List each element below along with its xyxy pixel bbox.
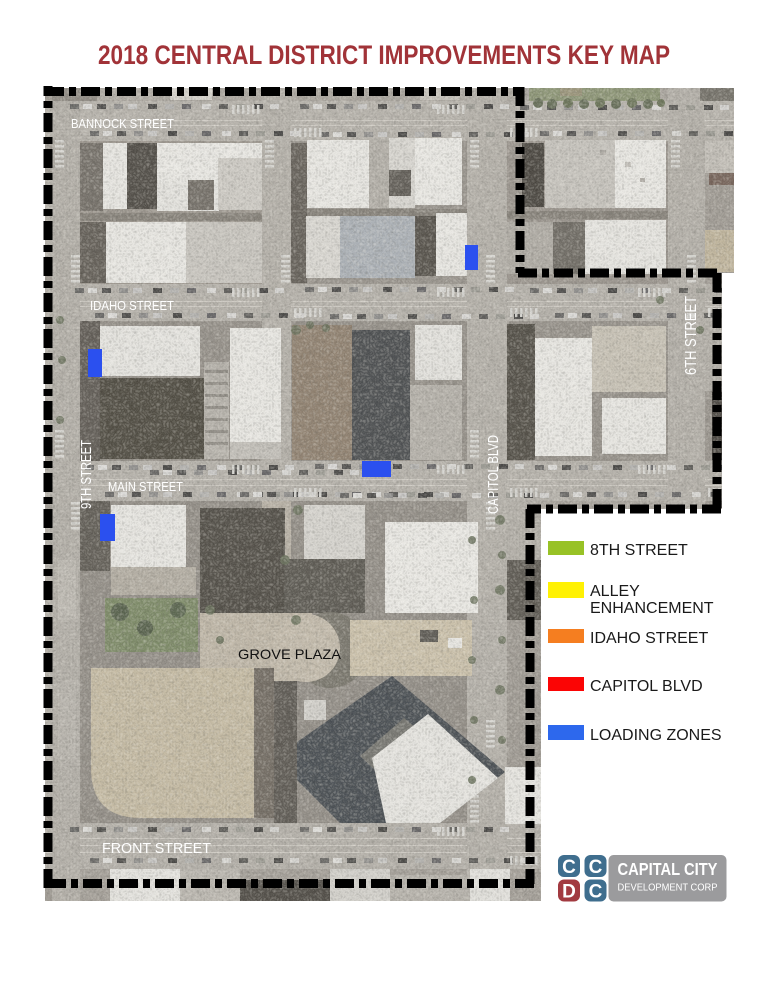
- svg-text:IDAHO STREET: IDAHO STREET: [90, 298, 174, 313]
- svg-text:C: C: [562, 857, 576, 878]
- svg-text:CAPITOL BLVD: CAPITOL BLVD: [485, 435, 502, 514]
- svg-text:BANNOCK STREET: BANNOCK STREET: [71, 116, 174, 131]
- svg-text:FRONT STREET: FRONT STREET: [102, 840, 211, 857]
- svg-text:CAPITOL BLVD: CAPITOL BLVD: [590, 678, 703, 695]
- svg-text:MAIN STREET: MAIN STREET: [108, 479, 183, 494]
- svg-text:2018 CENTRAL DISTRICT IMPROVEM: 2018 CENTRAL DISTRICT IMPROVEMENTS KEY M…: [98, 40, 670, 70]
- svg-text:CAPITAL CITY: CAPITAL CITY: [618, 859, 718, 879]
- svg-text:C: C: [589, 882, 603, 903]
- svg-text:LOADING ZONES: LOADING ZONES: [590, 727, 722, 744]
- svg-text:D: D: [562, 882, 576, 903]
- svg-text:ALLEY: ALLEY: [590, 583, 640, 600]
- svg-text:9TH STREET: 9TH STREET: [79, 440, 95, 509]
- svg-text:ENHANCEMENT: ENHANCEMENT: [590, 600, 714, 617]
- svg-text:DEVELOPMENT CORP: DEVELOPMENT CORP: [618, 883, 718, 894]
- svg-text:IDAHO STREET: IDAHO STREET: [590, 630, 708, 647]
- svg-text:6TH STREET: 6TH STREET: [683, 296, 700, 375]
- svg-text:GROVE PLAZA: GROVE PLAZA: [238, 646, 342, 662]
- svg-text:C: C: [589, 857, 603, 878]
- svg-text:8TH STREET: 8TH STREET: [590, 542, 688, 559]
